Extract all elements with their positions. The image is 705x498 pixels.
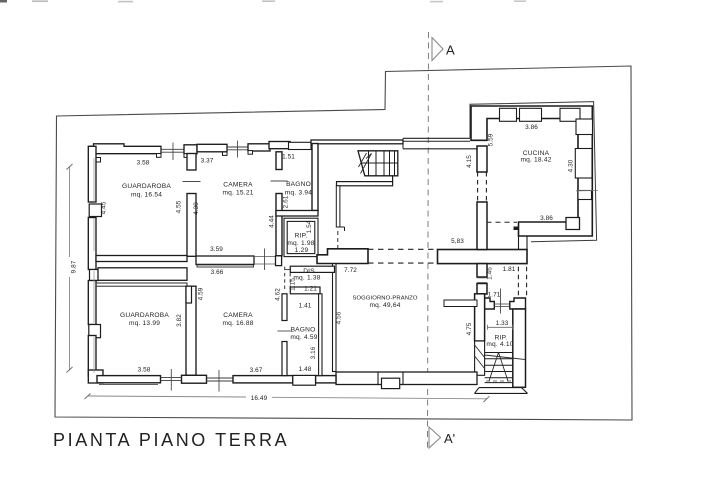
svg-text:1.81: 1.81 [503, 266, 516, 273]
svg-text:5.59: 5.59 [488, 133, 495, 146]
svg-text:4.62: 4.62 [275, 288, 282, 301]
svg-text:mq. 1.98: mq. 1.98 [287, 240, 314, 247]
svg-text:mq. 3.94: mq. 3.94 [285, 190, 312, 197]
svg-text:9.87: 9.87 [71, 260, 78, 273]
svg-text:3.82: 3.82 [176, 314, 183, 327]
svg-text:3.16: 3.16 [310, 346, 317, 359]
svg-text:16.49: 16.49 [251, 395, 268, 402]
svg-text:4.55: 4.55 [176, 200, 183, 213]
svg-text:3.86: 3.86 [540, 215, 553, 222]
svg-text:1.33: 1.33 [496, 320, 509, 327]
svg-text:4.75: 4.75 [466, 322, 473, 335]
svg-text:4.30: 4.30 [193, 202, 200, 215]
svg-text:5,83: 5,83 [451, 238, 464, 245]
svg-text:7.72: 7.72 [344, 267, 357, 274]
svg-text:mq. 49,64: mq. 49,64 [369, 302, 400, 309]
svg-text:BAGNO: BAGNO [291, 327, 316, 334]
svg-text:SOGGIORNO-PRANZO: SOGGIORNO-PRANZO [352, 296, 417, 302]
svg-text:mq. 16.54: mq. 16.54 [131, 192, 162, 199]
svg-text:1.54: 1.54 [306, 220, 313, 233]
svg-text:4.15: 4.15 [466, 155, 473, 168]
svg-text:3.58: 3.58 [138, 367, 151, 374]
svg-text:GUARDAROBA: GUARDAROBA [120, 312, 169, 319]
svg-text:CAMERA: CAMERA [223, 312, 253, 319]
svg-text:mq. 1.38: mq. 1.38 [293, 274, 320, 281]
svg-text:1.48: 1.48 [299, 366, 312, 373]
svg-text:BAGNO: BAGNO [286, 181, 311, 188]
svg-text:1.46: 1.46 [487, 267, 494, 280]
svg-text:3.67: 3.67 [250, 367, 263, 374]
svg-text:mq. 15.21: mq. 15.21 [222, 190, 253, 197]
svg-text:PIANTA PIANO TERRA: PIANTA PIANO TERRA [53, 430, 289, 450]
svg-text:mq. 18.42: mq. 18.42 [520, 157, 551, 164]
svg-text:3.59: 3.59 [210, 246, 223, 253]
svg-text:4.30: 4.30 [568, 159, 575, 172]
svg-text:mq. 16.88: mq. 16.88 [222, 320, 253, 327]
svg-text:4.45: 4.45 [101, 201, 108, 214]
svg-text:1.21: 1.21 [304, 286, 317, 293]
svg-text:1.41: 1.41 [299, 302, 312, 309]
svg-text:1.71: 1.71 [488, 292, 501, 299]
svg-text:4.44: 4.44 [269, 215, 276, 228]
svg-text:2.61: 2.61 [283, 195, 290, 208]
svg-text:3.37: 3.37 [201, 158, 214, 165]
svg-text:3.58: 3.58 [137, 160, 150, 167]
svg-text:mq. 4.59: mq. 4.59 [290, 334, 317, 341]
svg-text:4.59: 4.59 [198, 287, 205, 300]
svg-text:1.51: 1.51 [282, 154, 295, 161]
svg-text:3.66: 3.66 [211, 269, 224, 276]
svg-text:CAMERA: CAMERA [223, 182, 253, 189]
svg-text:1.15: 1.15 [290, 278, 297, 291]
svg-text:A: A [446, 43, 455, 58]
svg-text:mq. 4.10: mq. 4.10 [486, 341, 513, 348]
svg-text:A': A' [444, 431, 455, 446]
svg-text:1.29: 1.29 [295, 247, 309, 254]
svg-text:GUARDAROBA: GUARDAROBA [122, 183, 171, 190]
svg-text:4.56: 4.56 [336, 311, 343, 324]
svg-text:3.86: 3.86 [525, 124, 538, 131]
svg-text:mq. 13.99: mq. 13.99 [129, 320, 160, 327]
